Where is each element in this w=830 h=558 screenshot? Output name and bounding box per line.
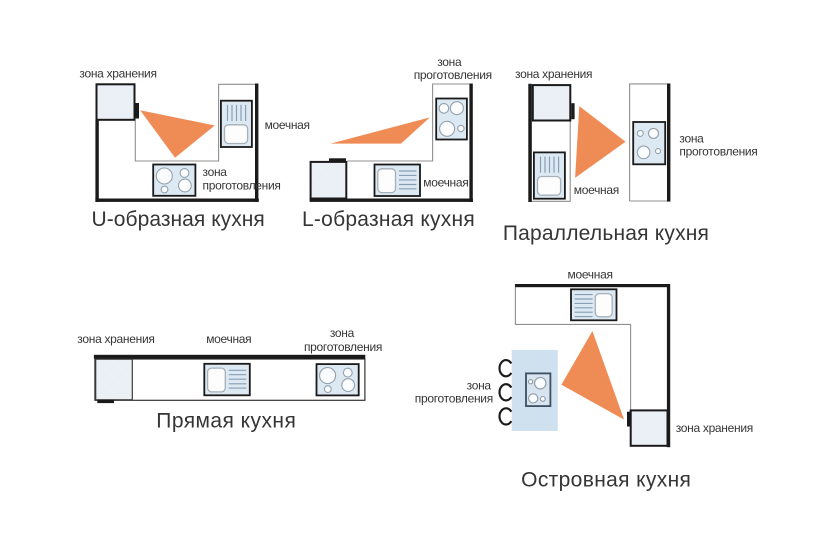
svg-text:U-образная кухня: U-образная кухня — [92, 208, 265, 231]
svg-text:Параллельная кухня: Параллельная кухня — [503, 222, 709, 245]
svg-text:проготовления: проготовления — [679, 145, 757, 159]
svg-text:моечная: моечная — [574, 183, 619, 197]
svg-text:проготовления: проготовления — [203, 178, 281, 192]
svg-text:Прямая кухня: Прямая кухня — [156, 410, 296, 433]
svg-text:зона хранения: зона хранения — [77, 332, 154, 346]
svg-text:моечная: моечная — [423, 176, 468, 190]
svg-text:зона: зона — [679, 132, 704, 146]
svg-text:зона: зона — [203, 165, 228, 179]
svg-text:моечная: моечная — [568, 267, 613, 281]
svg-text:проготовления: проготовления — [304, 340, 382, 354]
svg-text:зона хранения: зона хранения — [676, 421, 753, 435]
svg-text:зона: зона — [437, 55, 462, 69]
svg-text:Островная кухня: Островная кухня — [521, 468, 691, 491]
svg-text:зона хранения: зона хранения — [515, 67, 592, 81]
svg-text:зона: зона — [467, 379, 492, 393]
svg-text:зона: зона — [330, 326, 355, 340]
svg-text:проготовления: проготовления — [415, 392, 493, 406]
svg-text:моечная: моечная — [265, 118, 310, 132]
svg-text:зона хранения: зона хранения — [79, 66, 156, 80]
svg-text:моечная: моечная — [206, 332, 251, 346]
svg-text:проготовления: проготовления — [414, 68, 492, 82]
svg-text:L-образная кухня: L-образная кухня — [302, 208, 475, 231]
